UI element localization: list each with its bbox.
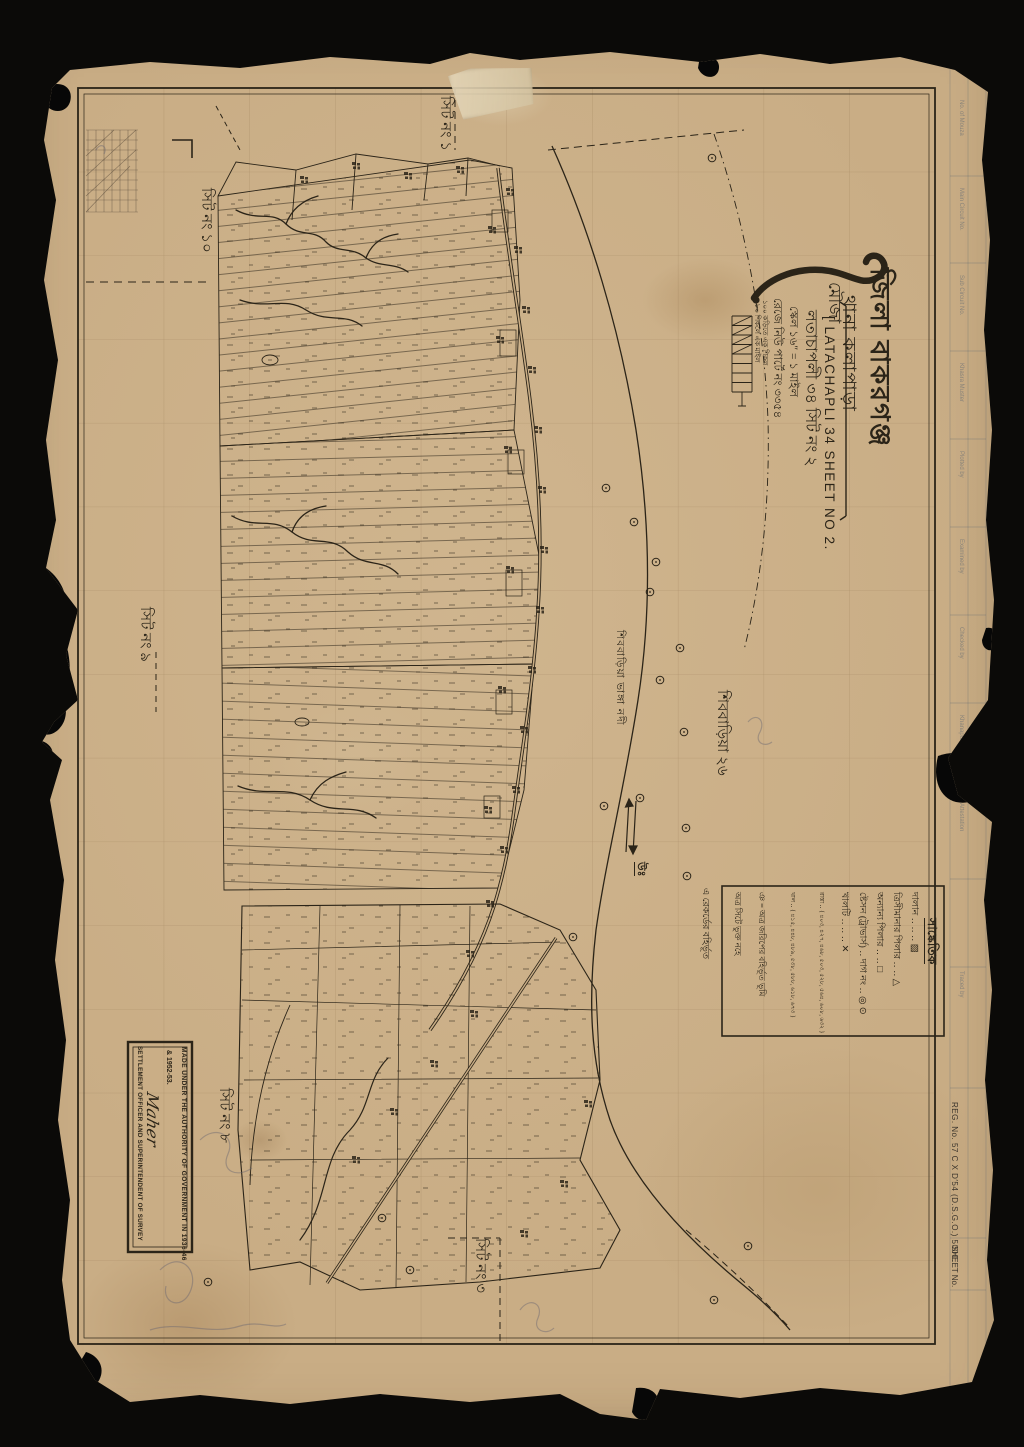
margin-reg-no: REG. No. 57 C X D′54 (D.S.G.O.) 5000. bbox=[950, 1102, 958, 1262]
north-label: উঃ bbox=[634, 862, 646, 876]
margin-field: Plotted by bbox=[958, 451, 964, 478]
stamp-authority-line: MADE UNDER THE AUTHORITY OF GOVERNMENT I… bbox=[179, 1047, 186, 1261]
scale-note-2: ৮০ শিকলে এক মাইল bbox=[753, 304, 760, 362]
legend-row: অত্র সিটে ভুক্ত নহে bbox=[734, 892, 743, 956]
exclusion-note: এ রেকর্ডের বহির্ভূত bbox=[700, 888, 710, 959]
scale-line: স্কেল ১৬″ = ১ মাইল bbox=[787, 306, 799, 397]
legend-row: দালান ‥ ‥ ‥ ▨ bbox=[909, 892, 919, 953]
legend-row: ত্রিসীমানার পিলার ‥ ‥ △ bbox=[891, 892, 901, 986]
margin-field: Attestation bbox=[958, 803, 964, 831]
district-title: জিলা বাকরগঞ্জ bbox=[866, 268, 893, 448]
scanned-map-page: { "title_block": { "district_line": "জিল… bbox=[0, 0, 1024, 1447]
register-line: রেজে নিউ পার্টে নং ৩৩৫৪ bbox=[771, 298, 783, 418]
margin-field: Main Circuit No. bbox=[958, 188, 964, 231]
sheet-label-top: সিট নং ১ bbox=[437, 96, 452, 151]
stamp-year-line: & 1952-53. bbox=[165, 1050, 172, 1085]
margin-field: Khasra Muster bbox=[958, 363, 964, 402]
margin-field: Traced by bbox=[958, 971, 964, 997]
stamp-officer-line: SETTLEMENT OFFICER AND SUPERINTENDENT OF… bbox=[136, 1046, 142, 1241]
bottom-plots bbox=[238, 904, 620, 1290]
margin-field: No. of Mouza bbox=[958, 100, 964, 136]
legend-row: রাস্তা ‥ { ৪০৩, ৪২৭, ৪৬৮, ৫০৩, ৫২৮, ৫৬৪,… bbox=[818, 892, 824, 1033]
sheet-label-left-lower: সিট নং ৯ bbox=[137, 607, 152, 662]
margin-sheet-no: SHEET No. bbox=[950, 1246, 958, 1287]
margin-field: Khanapuri bbox=[958, 715, 964, 742]
legend-row: খালটি ‥ ‥ ‥ ✕ bbox=[839, 892, 849, 952]
sheet-label-left-upper: সিট নং ১০ bbox=[198, 188, 213, 253]
legend-row: ষ্টেসন (ট্রাভার্স) ‥ দাগ নং ‥ ◎ ⊙ bbox=[857, 892, 867, 1015]
margin-field: Sub Circuit No. bbox=[958, 275, 964, 315]
officer-signature: Maher bbox=[144, 1090, 160, 1148]
legend-row: অন্যান্য পিলার ‥ ‥ □ bbox=[874, 892, 884, 972]
sheet-label-bottom-left: সিট নং ৮ bbox=[216, 1088, 231, 1143]
map-paper-sheet: জিলা বাকরগঞ্জ থানা কলাপাড়া মৌজা [ LATAC… bbox=[0, 0, 1024, 1447]
mouza-name-bengali: লতাচাপলী ৩৪ সিট নং ২ bbox=[802, 310, 818, 467]
neighbour-mouza-label: শিববাড়িয়া ২৬ bbox=[714, 690, 729, 776]
map-linework bbox=[0, 0, 1024, 1447]
margin-field: Examined by bbox=[958, 539, 964, 574]
mouza-name-english: [ LATACHAPLI 34 SHEET NO 2. bbox=[823, 316, 837, 551]
strip-fields bbox=[218, 160, 540, 890]
sheet-label-bottom: সিট নং ৩ bbox=[472, 1238, 487, 1293]
river-name-label: শিববাড়িয়া ভাঙ্গা নদী bbox=[614, 630, 625, 726]
scale-note-1: ১০০ কড়িতে এক শিকল bbox=[761, 300, 768, 365]
legend-row: ঞ = অত্র জরিপের বহির্ভূত ভূমি bbox=[758, 892, 767, 996]
legend-heading: সাঙ্কেতিক bbox=[925, 918, 939, 964]
legend-row: খাল ‥ { ৪১৫, ৪৪৮, ৪৮৯, ৫৩৮, ৫৮৮, ৬১৮, ৬৭… bbox=[789, 892, 795, 1018]
margin-field: Checked by bbox=[958, 627, 964, 659]
